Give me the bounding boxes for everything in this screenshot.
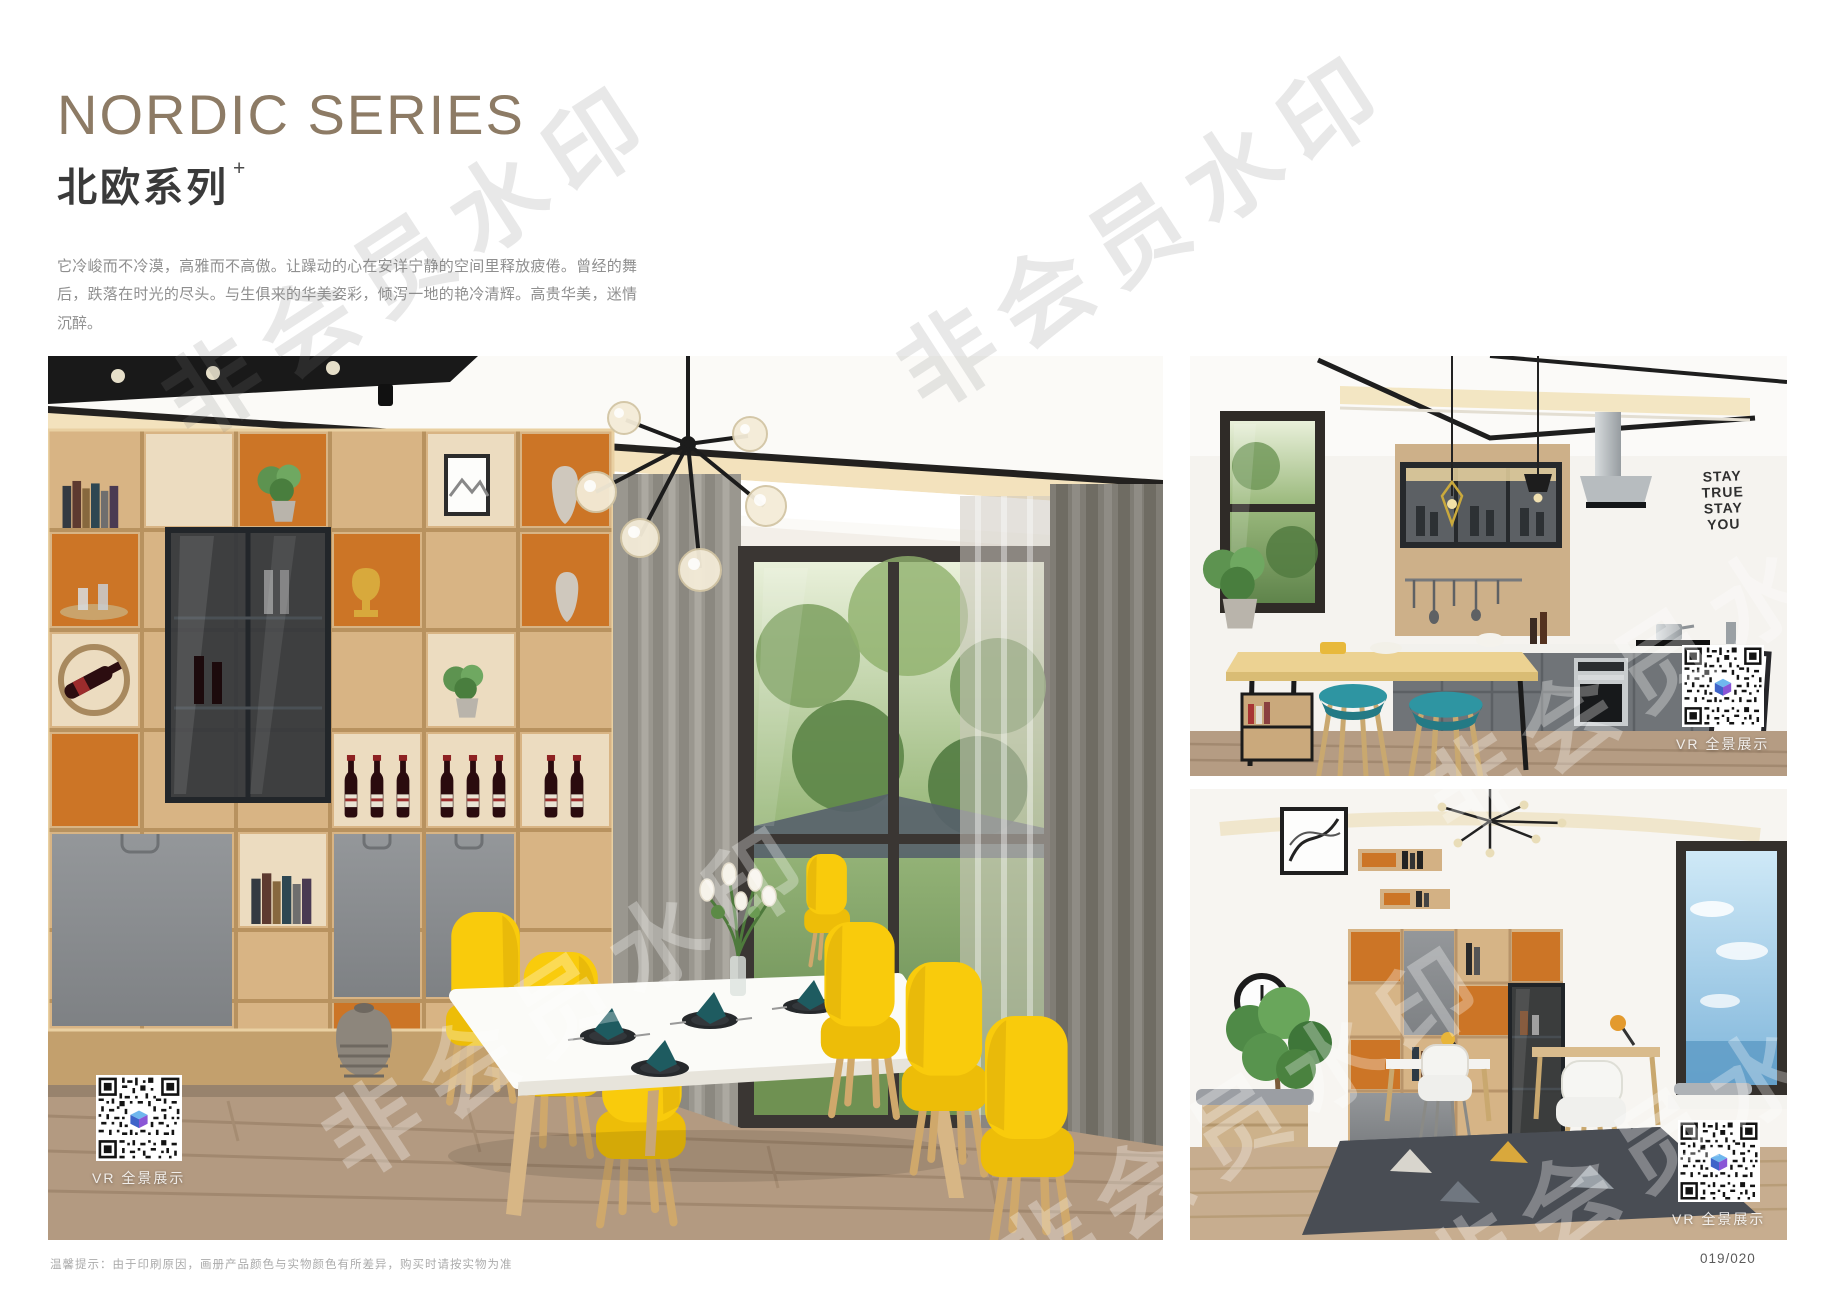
qr-code-icon xyxy=(96,1075,182,1161)
oven xyxy=(1574,658,1628,726)
page-title: NORDIC SERIES xyxy=(57,86,657,145)
qr-code-icon xyxy=(1682,645,1764,727)
desk-lamp xyxy=(1441,1032,1455,1046)
shelving-unit xyxy=(1348,929,1563,1141)
vr-qr-badge: VR 全景展示 xyxy=(1676,645,1769,754)
description-zh: 它冷峻而不冷漠，高雅而不高傲。让躁动的心在安详宁静的空间里释放疲倦。曾经的舞后，… xyxy=(57,253,637,339)
wall-decal: STAY TRUE STAY YOU xyxy=(1687,467,1759,534)
study-room-photo: VR 全景展示 xyxy=(1190,789,1787,1240)
striped-jar xyxy=(336,1003,392,1076)
art-frame xyxy=(1282,809,1346,873)
vr-label: VR 全景展示 xyxy=(1676,734,1769,754)
bowl xyxy=(1320,642,1346,654)
qr-code-icon xyxy=(1678,1120,1760,1202)
kitchen-photo: STAY TRUE STAY YOU VR 全景展示 xyxy=(1190,356,1787,776)
decal-line: YOU xyxy=(1689,515,1760,534)
page-number: 019/020 xyxy=(1700,1251,1756,1266)
catalog-page: NORDIC SERIES 北欧系列+ 它冷峻而不冷漠，高雅而不高傲。让躁动的心… xyxy=(0,0,1836,1307)
vr-qr-badge: VR 全景展示 xyxy=(92,1075,185,1188)
bench xyxy=(1196,1089,1314,1147)
dining-room-illustration xyxy=(48,356,1163,1240)
title-plus: + xyxy=(233,157,248,180)
desk-lamp xyxy=(1610,1015,1626,1031)
footer-note: 温馨提示：由于印刷原因，画册产品颜色与实物颜色有所差异，购买时请按实物为准 xyxy=(50,1256,513,1272)
page-subtitle: 北欧系列+ xyxy=(57,155,657,213)
vr-label: VR 全景展示 xyxy=(92,1168,185,1188)
window xyxy=(1668,841,1787,1109)
dining-room-photo: VR 全景展示 xyxy=(48,356,1163,1240)
glass-cabinet xyxy=(168,530,328,800)
vr-label: VR 全景展示 xyxy=(1672,1209,1765,1229)
vr-qr-badge: VR 全景展示 xyxy=(1672,1120,1765,1229)
subtitle-text: 北欧系列 xyxy=(57,166,229,210)
upper-cabinets xyxy=(1395,444,1570,636)
